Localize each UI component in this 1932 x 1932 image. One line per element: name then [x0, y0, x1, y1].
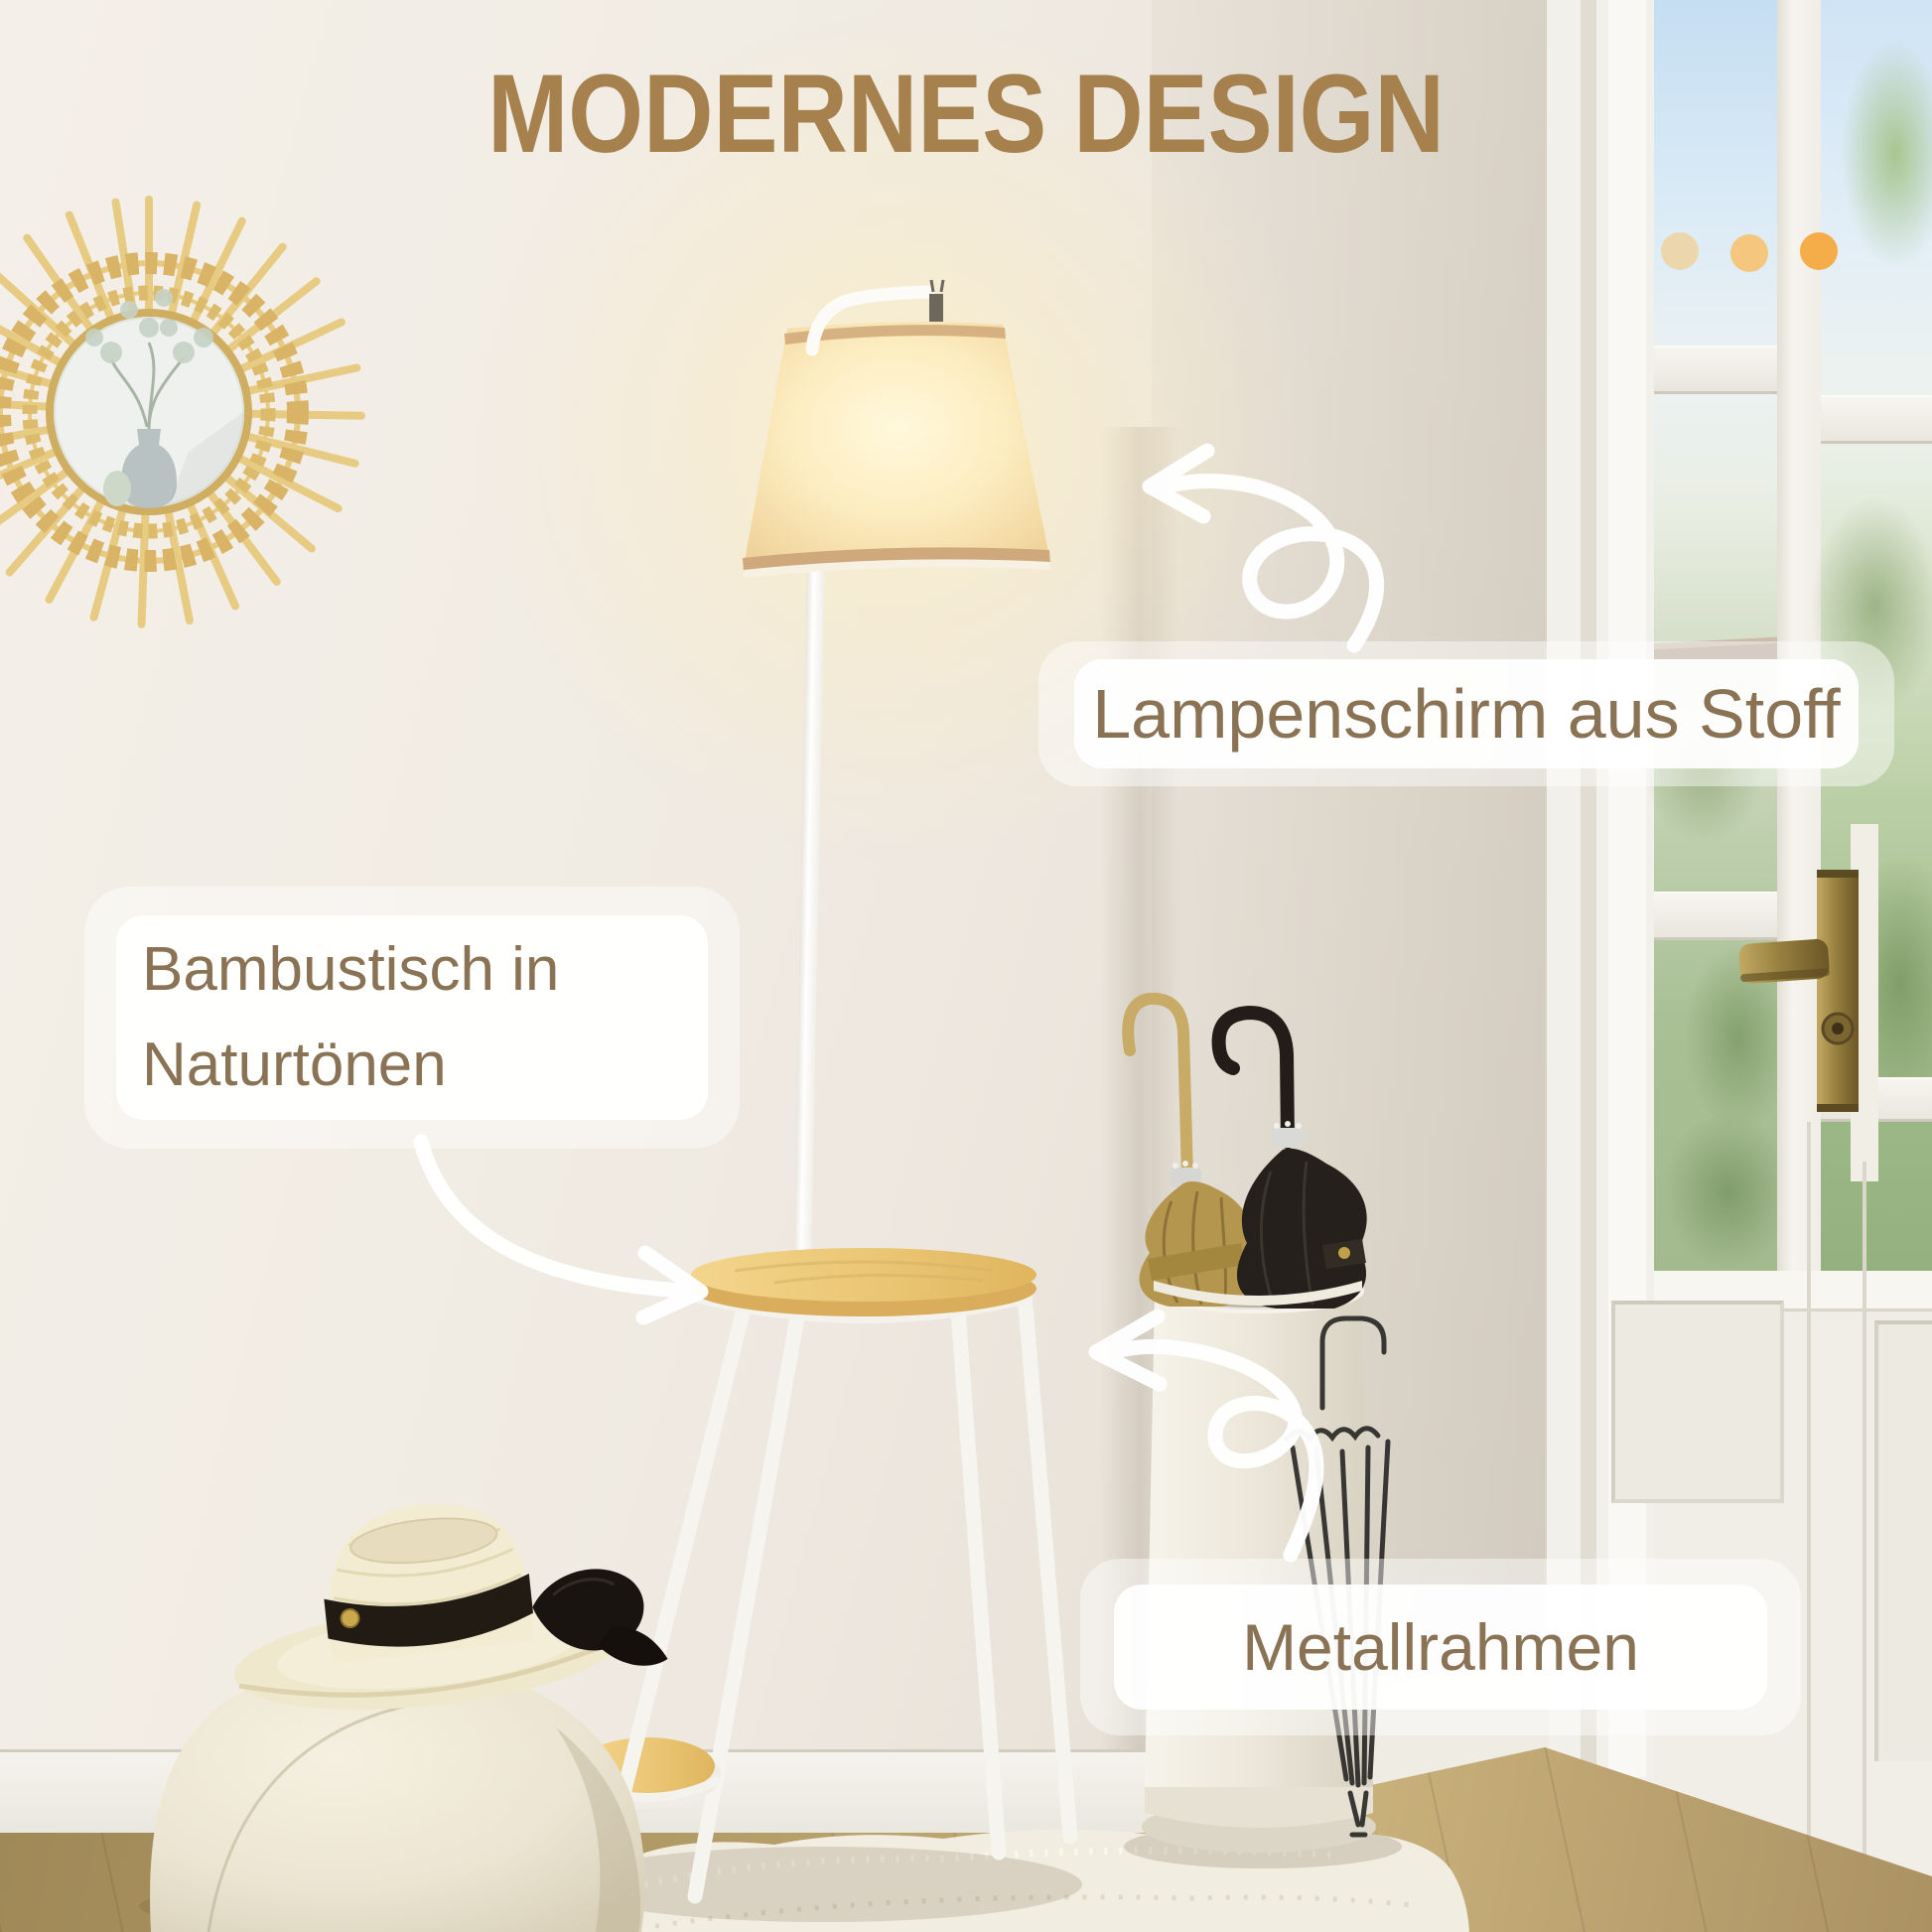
callout-frame-pill: Metallrahmen — [1114, 1585, 1767, 1710]
callout-table-label: Bambustisch in Naturtönen — [142, 922, 619, 1113]
callout-table: Bambustisch in Naturtönen — [84, 887, 740, 1149]
callout-frame-label: Metallrahmen — [1242, 1609, 1639, 1685]
sunburst-mirror — [0, 200, 361, 624]
door-handle — [1738, 870, 1859, 1112]
callout-lampshade: Lampenschirm aus Stoff — [1038, 641, 1894, 786]
side-table — [574, 1248, 1070, 1896]
umbrella-tan — [1128, 999, 1251, 1307]
page-title: MODERNES DESIGN — [125, 50, 1806, 178]
hat-pin — [341, 1608, 360, 1628]
callout-lampshade-label: Lampenschirm aus Stoff — [1092, 674, 1841, 754]
umbrella-black — [1219, 1013, 1367, 1309]
accent-dot-icon — [1661, 232, 1699, 270]
arrow-to-table — [421, 1142, 701, 1317]
straw-hat — [218, 1480, 670, 1725]
callout-lampshade-pill: Lampenschirm aus Stoff — [1074, 659, 1859, 768]
lamp-finial — [929, 294, 943, 322]
table-legs — [695, 1299, 999, 1896]
accent-dot-icon — [1730, 234, 1768, 272]
callout-table-pill: Bambustisch in Naturtönen — [116, 915, 708, 1120]
product-infographic: MODERNES DESIGN Lampenschirm aus Stoff B… — [0, 0, 1932, 1932]
accent-dot-icon — [1800, 232, 1838, 270]
callout-frame: Metallrahmen — [1080, 1559, 1801, 1735]
